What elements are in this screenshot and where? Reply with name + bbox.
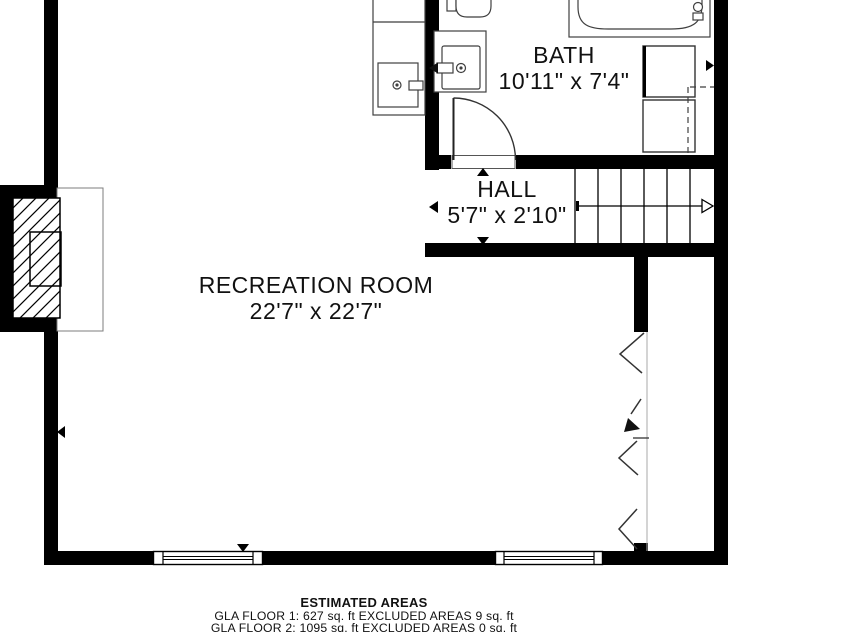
room-name: HALL: [417, 176, 597, 202]
fireplace-wall-left: [0, 185, 13, 332]
stairwell-stub-wall: [634, 257, 648, 332]
room-name: RECREATION ROOM: [161, 272, 471, 298]
room-label-bath: BATH 10'11" x 7'4": [464, 42, 664, 94]
room-label-hall: HALL 5'7" x 2'10": [417, 176, 597, 228]
marker-left-icon: [57, 426, 65, 438]
estimated-areas: ESTIMATED AREAS GLA FLOOR 1: 627 sq. ft …: [0, 595, 728, 632]
bathtub: [569, 0, 710, 37]
room-dimensions: 5'7" x 2'10": [417, 202, 597, 228]
window-1: [153, 551, 263, 565]
hall-bottom-wall: [425, 243, 728, 257]
marker-down-icon: [237, 544, 249, 552]
toilet: [447, 0, 491, 17]
hearth: [57, 188, 103, 331]
left-wall-upper: [44, 0, 58, 192]
appliance-square-2: [643, 100, 695, 152]
marker-right-icon: [706, 60, 714, 71]
sink-drain-dot: [395, 83, 398, 86]
toilet-bowl: [456, 0, 491, 17]
estimated-areas-title: ESTIMATED AREAS: [0, 595, 728, 610]
room-dimensions: 22'7" x 22'7": [161, 298, 471, 324]
room-dimensions: 10'11" x 7'4": [464, 68, 664, 94]
toilet-tank: [447, 0, 456, 11]
tub-faucet-spout: [693, 13, 703, 20]
left-wall-lower: [44, 318, 58, 565]
gla-floor2-line: GLA FLOOR 2: 1095 sq. ft EXCLUDED AREAS …: [0, 622, 728, 632]
vanity-drain-dot: [459, 66, 462, 69]
stair-arrow-head-icon: [702, 200, 713, 213]
sink-faucet-handle: [409, 81, 423, 90]
door-opening: [451, 154, 516, 170]
bottom-wall: [44, 551, 728, 565]
wet-bar: [373, 0, 425, 115]
tub-outer: [569, 0, 710, 37]
window-2: [495, 551, 603, 565]
break-chevron: [619, 441, 638, 475]
room-name: BATH: [464, 42, 664, 68]
vanity-faucet: [437, 63, 453, 73]
break-arrow-icon: [624, 418, 640, 432]
right-wall: [714, 0, 728, 565]
firebox-hatched: [13, 198, 60, 318]
break-segment: [631, 399, 641, 414]
fireplace: [13, 188, 103, 331]
floor-plan: BATH 10'11" x 7'4" HALL 5'7" x 2'10" REC…: [0, 0, 843, 632]
break-chevron: [620, 333, 644, 373]
tub-faucet-icon: [694, 3, 703, 12]
bath-door: [451, 98, 516, 170]
door-swing-arc: [454, 98, 516, 160]
room-label-recreation: RECREATION ROOM 22'7" x 22'7": [161, 272, 471, 324]
open-to-below-break-line: [619, 332, 649, 551]
